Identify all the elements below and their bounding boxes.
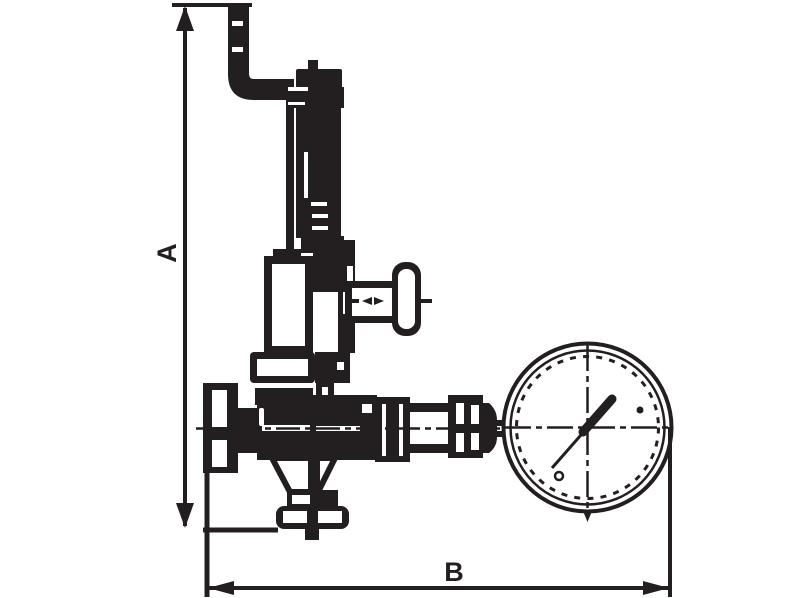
inlet-nut-facet — [212, 390, 227, 427]
top-cap — [296, 69, 342, 88]
hex-facet-line — [399, 404, 403, 456]
handle-grip-face — [398, 269, 415, 329]
housing-neck — [296, 108, 341, 238]
needle-counterweight — [555, 472, 563, 480]
outlet-stub — [305, 529, 319, 540]
boss-highlight — [347, 266, 353, 282]
outlet-flange-face — [283, 511, 307, 523]
flange-left-face — [257, 359, 308, 376]
pipe-thread-tick — [232, 21, 243, 26]
spring-housing — [288, 60, 344, 253]
outlet-flange-face — [318, 511, 342, 523]
flange-right — [315, 352, 350, 383]
outlet-band-face — [292, 495, 310, 504]
neck-highlight-line — [304, 152, 308, 198]
pipe-thread-tick — [232, 47, 243, 52]
dim-a-label: A — [152, 243, 182, 263]
neck-thread-line — [312, 226, 328, 230]
valve-dimensional-drawing: A B — [0, 0, 800, 598]
vent-pipe-drop-tube — [286, 98, 294, 254]
cap-nub — [308, 60, 318, 70]
hex-facet-line — [382, 404, 386, 456]
neck-thread-line — [311, 202, 327, 206]
neck-thread-line — [312, 214, 328, 218]
inlet-stub — [237, 408, 259, 453]
flange-separator-line — [288, 102, 305, 105]
nipple-wall-top — [408, 403, 450, 412]
inlet-nut-facet — [212, 440, 227, 467]
body-shoulder-highlight — [362, 404, 372, 413]
dial-marker-dot — [637, 407, 644, 414]
dim-b-label: B — [444, 557, 464, 587]
cap-separator-line — [288, 87, 308, 91]
bonnet-cylinder-face — [272, 264, 305, 346]
axis-centerline-dash — [347, 299, 359, 303]
body-edge-highlight — [259, 408, 264, 426]
axis-centerline-dash — [421, 299, 432, 303]
flange-right-notch — [337, 362, 344, 370]
drawing-canvas: A B — [0, 0, 800, 598]
bonnet — [264, 240, 355, 353]
nipple-wall-bottom — [408, 444, 450, 453]
